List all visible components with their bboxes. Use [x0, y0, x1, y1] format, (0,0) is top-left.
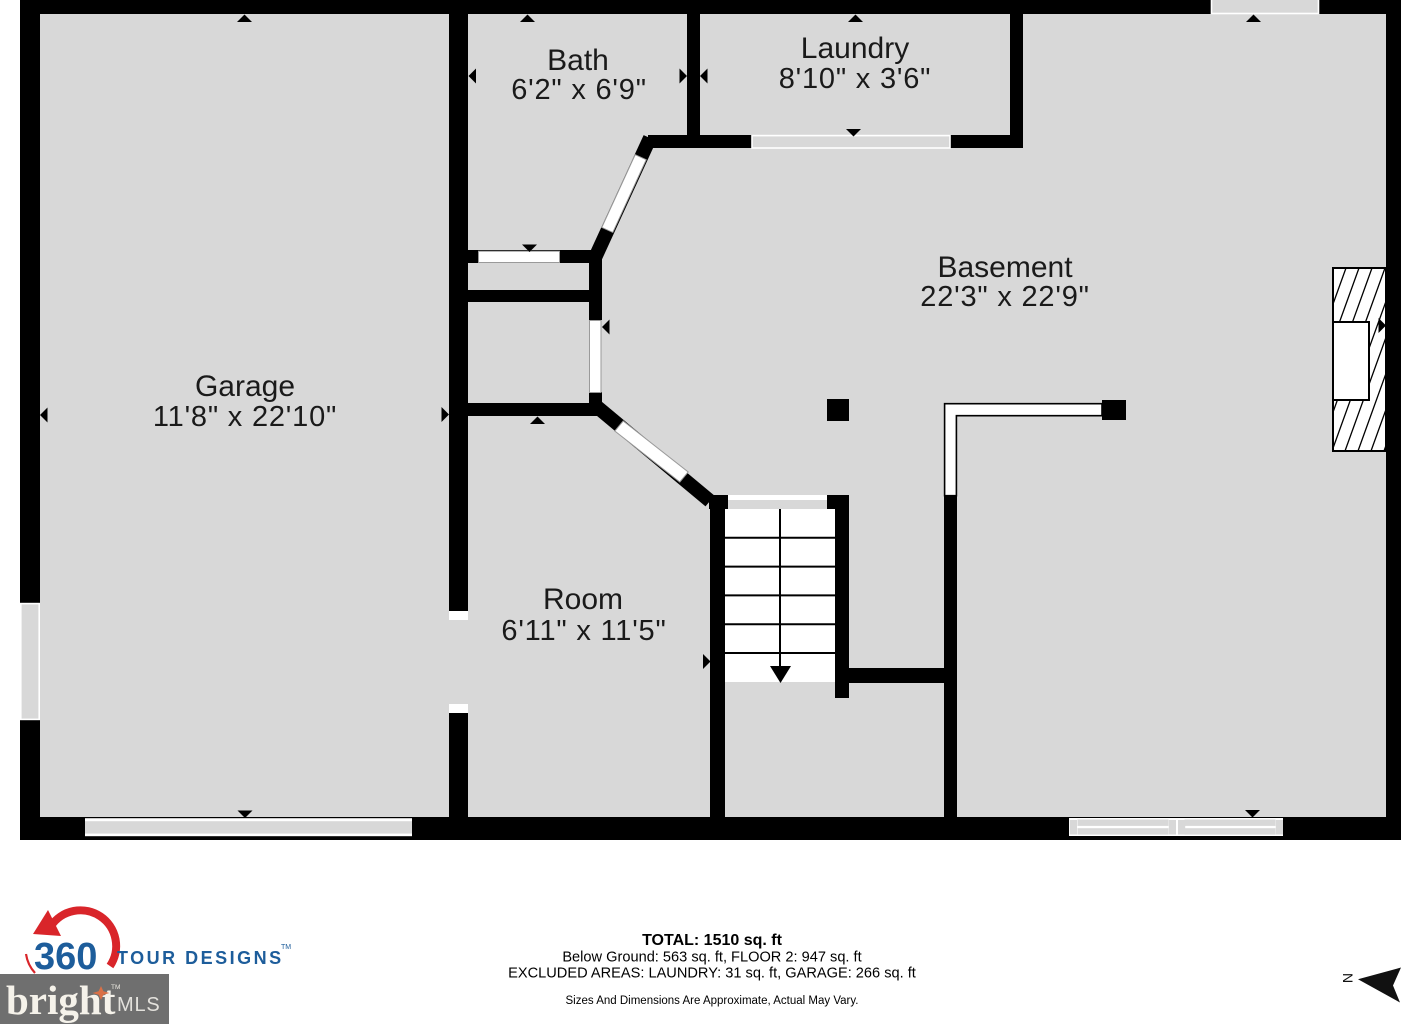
svg-text:TM: TM: [281, 944, 291, 951]
svg-text:Bath: Bath: [547, 44, 609, 77]
svg-text:8'10" x 3'6": 8'10" x 3'6": [779, 63, 932, 95]
svg-text:Basement: Basement: [937, 251, 1073, 284]
svg-text:360: 360: [34, 936, 97, 978]
svg-text:Garage: Garage: [195, 370, 295, 403]
svg-text:TM: TM: [111, 984, 120, 991]
svg-text:EXCLUDED AREAS: LAUNDRY: 31 sq: EXCLUDED AREAS: LAUNDRY: 31 sq. ft, GARA…: [508, 966, 916, 982]
svg-text:22'3" x 22'9": 22'3" x 22'9": [920, 281, 1089, 313]
svg-text:Sizes And Dimensions Are Appro: Sizes And Dimensions Are Approximate, Ac…: [566, 995, 859, 1007]
svg-text:6'2" x 6'9": 6'2" x 6'9": [511, 74, 647, 106]
svg-text:TOTAL: 1510 sq. ft: TOTAL: 1510 sq. ft: [642, 932, 783, 949]
svg-text:MLS: MLS: [117, 994, 161, 1016]
svg-text:Room: Room: [543, 583, 623, 616]
svg-text:bright: bright: [6, 977, 116, 1023]
svg-text:11'8" x 22'10": 11'8" x 22'10": [153, 401, 337, 433]
svg-text:N: N: [1340, 973, 1356, 983]
svg-text:Below Ground: 563 sq. ft, FLOO: Below Ground: 563 sq. ft, FLOOR 2: 947 s…: [562, 950, 861, 966]
svg-text:Laundry: Laundry: [801, 32, 909, 65]
svg-text:6'11" x 11'5": 6'11" x 11'5": [501, 615, 666, 647]
svg-text:TOUR DESIGNS: TOUR DESIGNS: [117, 948, 284, 968]
